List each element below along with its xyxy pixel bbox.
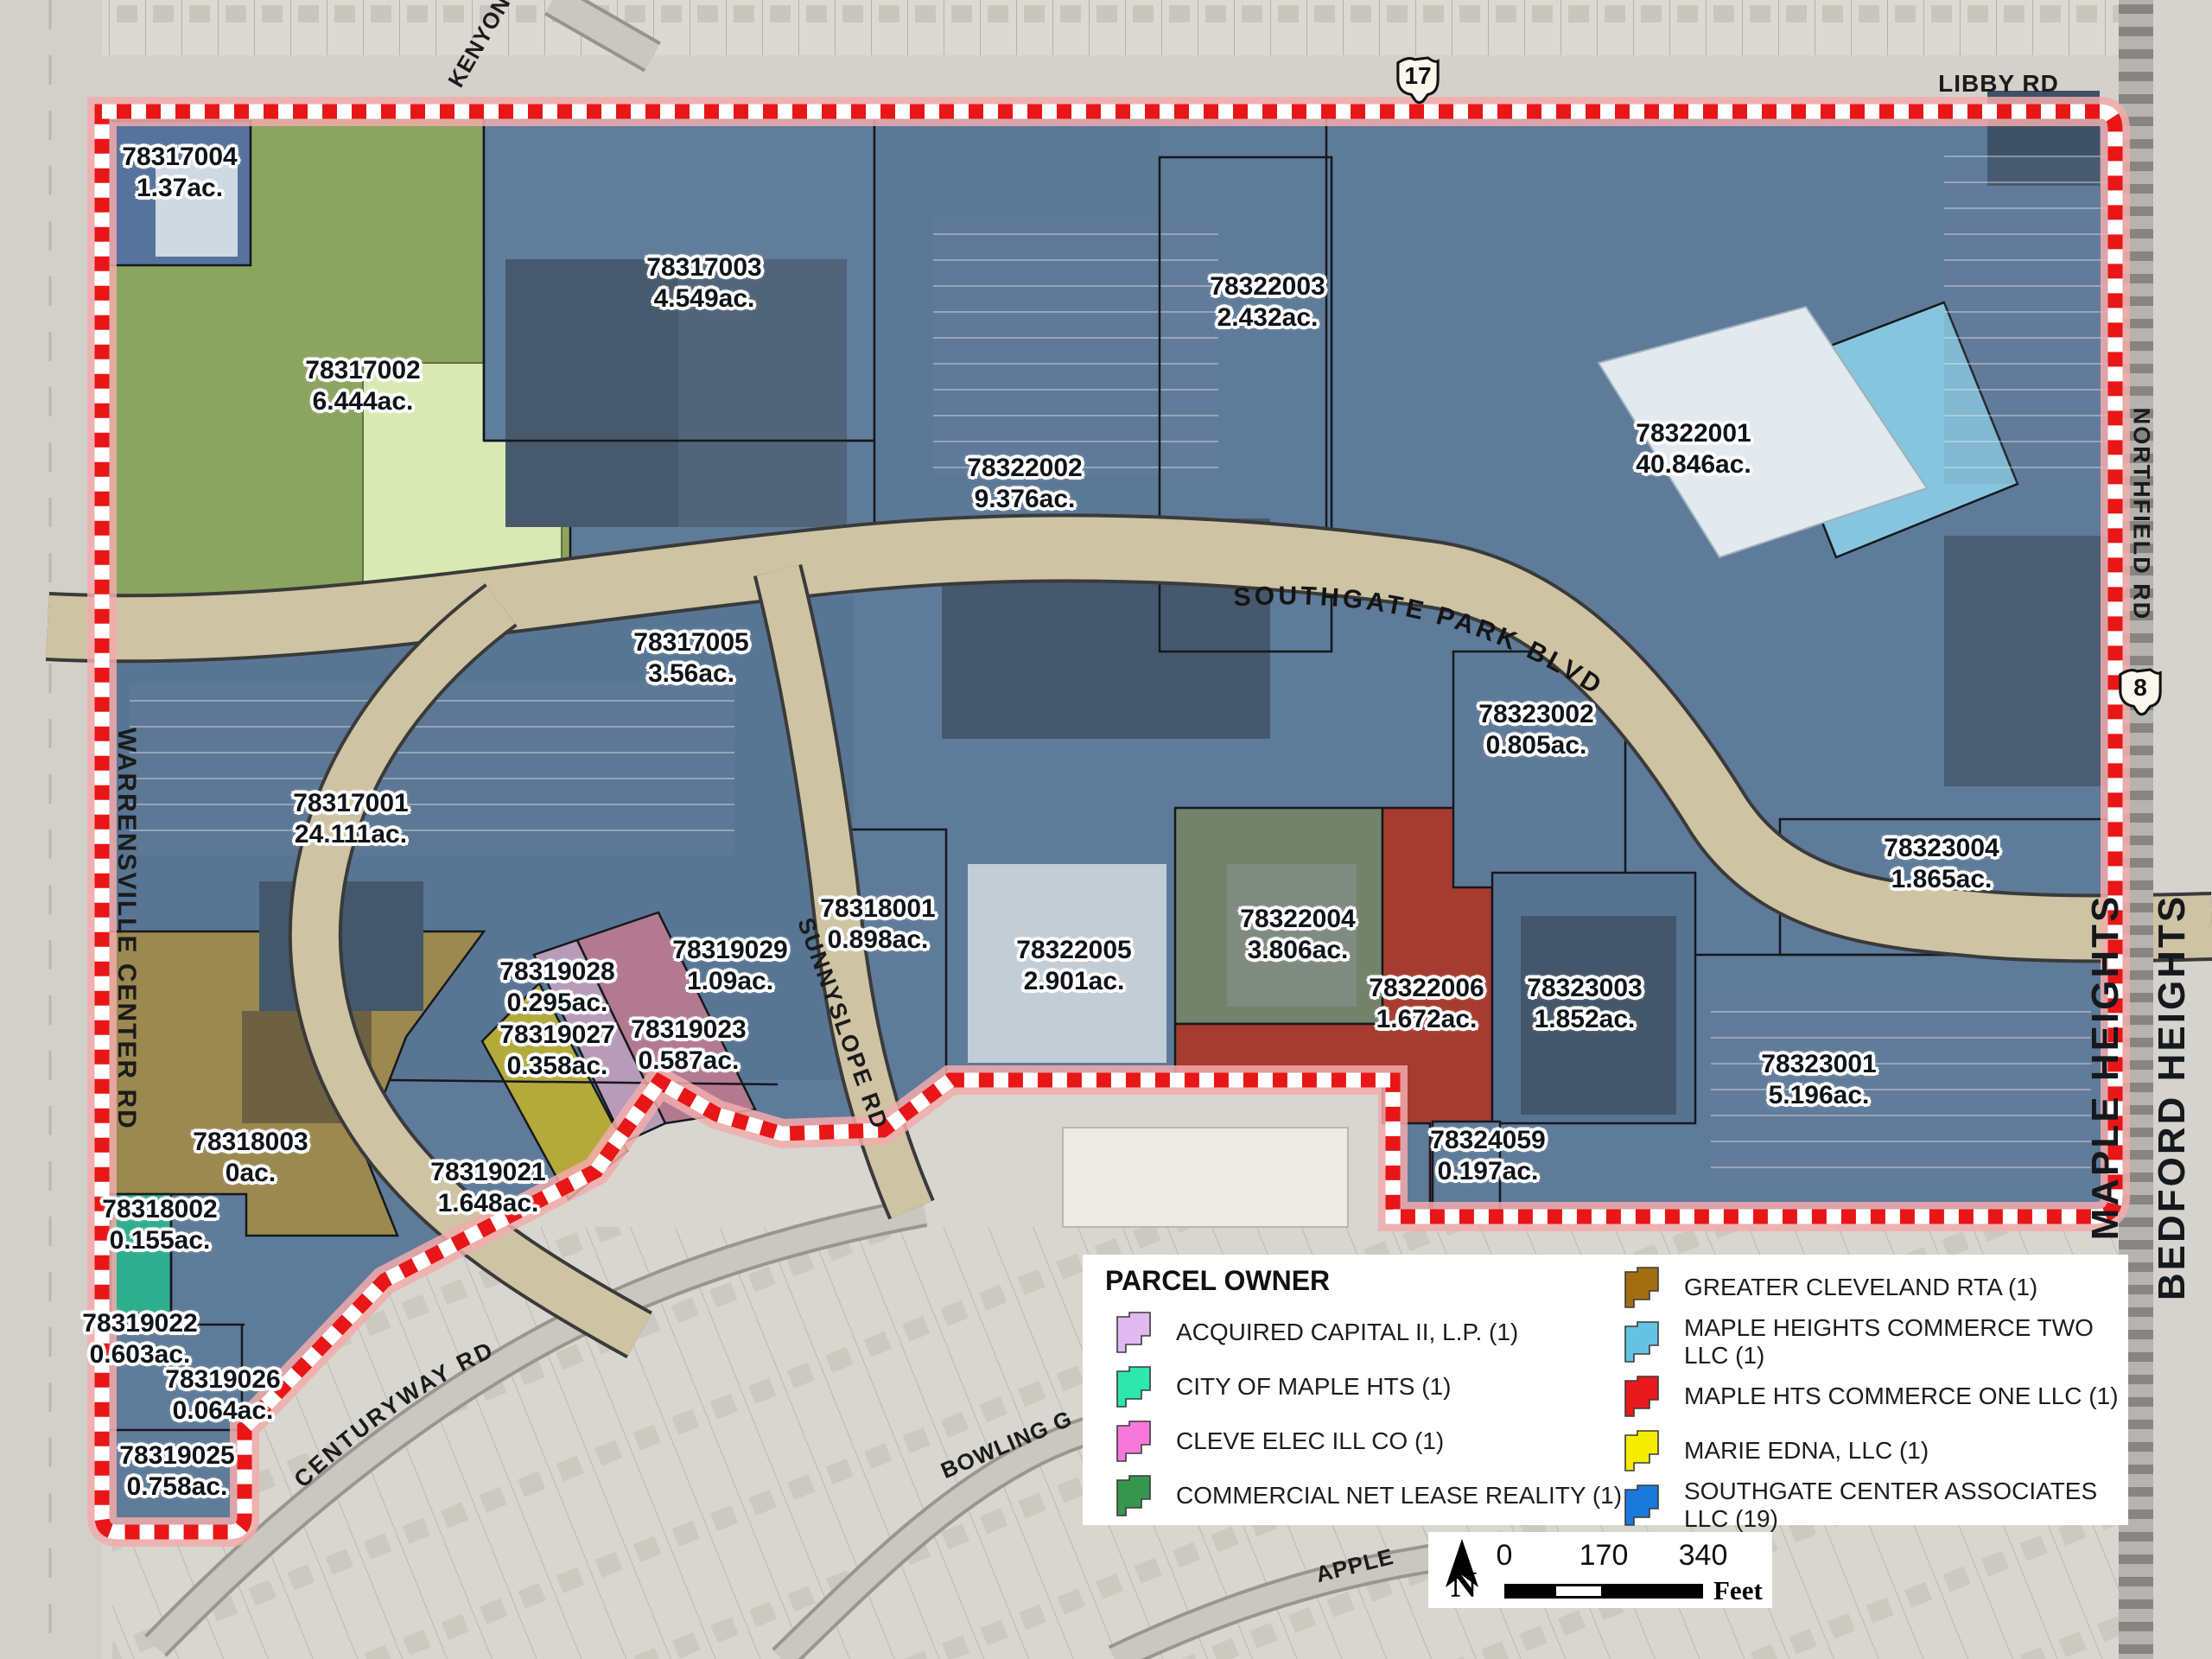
libby-road-label: LIBBY RD [1938, 70, 2059, 98]
owner-swatch-icon [1109, 1312, 1155, 1353]
parcel-label: 783180030ac. [193, 1127, 308, 1189]
parcel-label: 7831700124.111ac. [293, 788, 408, 850]
legend-entry: MARIE EDNA, LLC (1) [1617, 1423, 2128, 1478]
legend: PARCEL OWNER ACQUIRED CAPITAL II, L.P. (… [1083, 1255, 2128, 1525]
parcel-label: 783190260.064ac. [165, 1364, 280, 1427]
parcel-label: 783170053.56ac. [633, 627, 748, 690]
parcel-label: 783220029.376ac. [967, 453, 1082, 515]
legend-entry: COMMERCIAL NET LEASE REALITY (1) [1109, 1468, 1622, 1522]
owner-swatch-icon [1617, 1430, 1663, 1471]
owner-swatch-icon [1109, 1475, 1155, 1516]
parcel-label: 783190270.358ac. [499, 1020, 614, 1082]
owner-swatch-icon [1109, 1366, 1155, 1408]
parcel-label: 783230031.852ac. [1527, 973, 1642, 1035]
residential-lots-top [0, 0, 2212, 55]
parcel-map: SOUTHGATE PARK BLVD CENTURYWAY RD 783170… [0, 0, 2212, 1659]
parcel-label: 783180010.898ac. [820, 893, 935, 956]
legend-entry: CLEVE ELEC ILL CO (1) [1109, 1414, 1622, 1468]
legend-entry-label: COMMERCIAL NET LEASE REALITY (1) [1176, 1482, 1622, 1510]
city-label-maple-heights: MAPLE HEIGHTS [2084, 894, 2127, 1241]
parking-lot [1944, 156, 2108, 484]
owner-swatch-icon [1617, 1484, 1663, 1526]
route-17-shield: 17 [1395, 54, 1441, 105]
legend-entry-label: ACQUIRED CAPITAL II, L.P. (1) [1176, 1319, 1518, 1346]
owner-swatch-icon [1109, 1421, 1155, 1462]
outside-building [1063, 1128, 1348, 1227]
parcel-label: 783220061.672ac. [1369, 973, 1484, 1035]
parcel-label: 7832200140.846ac. [1636, 418, 1751, 480]
parcel-label: 783230041.865ac. [1884, 833, 1999, 895]
parcel-label: 783190211.648ac. [430, 1157, 545, 1219]
scale-unit: Feet [1713, 1575, 1763, 1606]
legend-entry: CITY OF MAPLE HTS (1) [1109, 1359, 1622, 1414]
scale-bar-segments [1504, 1584, 1703, 1599]
parcel-label: 783190250.758ac. [119, 1440, 234, 1503]
parcel-label: 783220052.901ac. [1016, 935, 1131, 997]
parking-lot [130, 683, 734, 855]
parking-lot [933, 216, 1218, 475]
scale-tick: 0 [1497, 1539, 1513, 1573]
parcel-label: 783220032.432ac. [1210, 271, 1325, 334]
parcel-label: 783190280.295ac. [499, 957, 614, 1019]
legend-entry-label: MAPLE HEIGHTS COMMERCE TWO LLC (1) [1684, 1314, 2128, 1370]
scale-tick: 340 [1679, 1539, 1728, 1573]
owner-swatch-icon [1617, 1376, 1663, 1417]
legend-entry-label: MAPLE HTS COMMERCE ONE LLC (1) [1684, 1382, 2119, 1410]
owner-swatch-icon [1617, 1321, 1663, 1363]
building [1944, 536, 2108, 786]
parcel-label: 783240590.197ac. [1430, 1125, 1545, 1187]
northfield-road-label: NORTHFIELD RD [2128, 408, 2155, 620]
legend-column-1: ACQUIRED CAPITAL II, L.P. (1)CITY OF MAP… [1109, 1305, 1622, 1522]
legend-entry: GREATER CLEVELAND RTA (1) [1617, 1260, 2128, 1314]
legend-entry: MAPLE HTS COMMERCE ONE LLC (1) [1617, 1369, 2128, 1423]
parcel-label: 783190230.587ac. [631, 1014, 746, 1077]
parcel-label: 783170034.549ac. [646, 252, 761, 315]
scale-segment [1604, 1584, 1703, 1599]
legend-entry-label: MARIE EDNA, LLC (1) [1684, 1437, 1929, 1465]
parcel-label: 783190220.603ac. [82, 1308, 197, 1370]
legend-column-2: GREATER CLEVELAND RTA (1)MAPLE HEIGHTS C… [1617, 1260, 2128, 1532]
north-label: N [1451, 1565, 1477, 1606]
legend-entry-label: GREATER CLEVELAND RTA (1) [1684, 1274, 2037, 1301]
parcel-label: 783230015.196ac. [1761, 1049, 1876, 1111]
route-8-shield: 8 [2117, 666, 2164, 716]
scale-segment [1554, 1584, 1604, 1599]
legend-entry-label: SOUTHGATE CENTER ASSOCIATES LLC (19) [1684, 1478, 2128, 1533]
legend-entry: ACQUIRED CAPITAL II, L.P. (1) [1109, 1305, 1622, 1359]
parcel-label: 783170041.37ac. [122, 142, 237, 204]
parcel-label: 783230020.805ac. [1478, 699, 1593, 761]
bedford-side-strip [2153, 0, 2212, 1659]
parcel-label: 783170026.444ac. [305, 355, 420, 417]
parcel-label: 783220043.806ac. [1240, 904, 1355, 966]
city-label-bedford-heights: BEDFORD HEIGHTS [2151, 894, 2194, 1300]
legend-title: PARCEL OWNER [1105, 1265, 1330, 1297]
legend-entry-label: CLEVE ELEC ILL CO (1) [1176, 1427, 1444, 1455]
scale-tick: 170 [1580, 1539, 1629, 1573]
legend-entry-label: CITY OF MAPLE HTS (1) [1176, 1373, 1451, 1401]
warrensville-road-label: WARRENSVILLE CENTER RD [111, 728, 141, 1130]
owner-swatch-icon [1617, 1267, 1663, 1308]
scale-bar: N 0170340 Feet [1428, 1532, 1772, 1608]
parcel-label: 783180020.155ac. [102, 1194, 217, 1256]
scale-segment [1504, 1584, 1554, 1599]
legend-entry: SOUTHGATE CENTER ASSOCIATES LLC (19) [1617, 1478, 2128, 1532]
parcel-label: 783190291.09ac. [672, 935, 787, 997]
legend-entry: MAPLE HEIGHTS COMMERCE TWO LLC (1) [1617, 1314, 2128, 1369]
